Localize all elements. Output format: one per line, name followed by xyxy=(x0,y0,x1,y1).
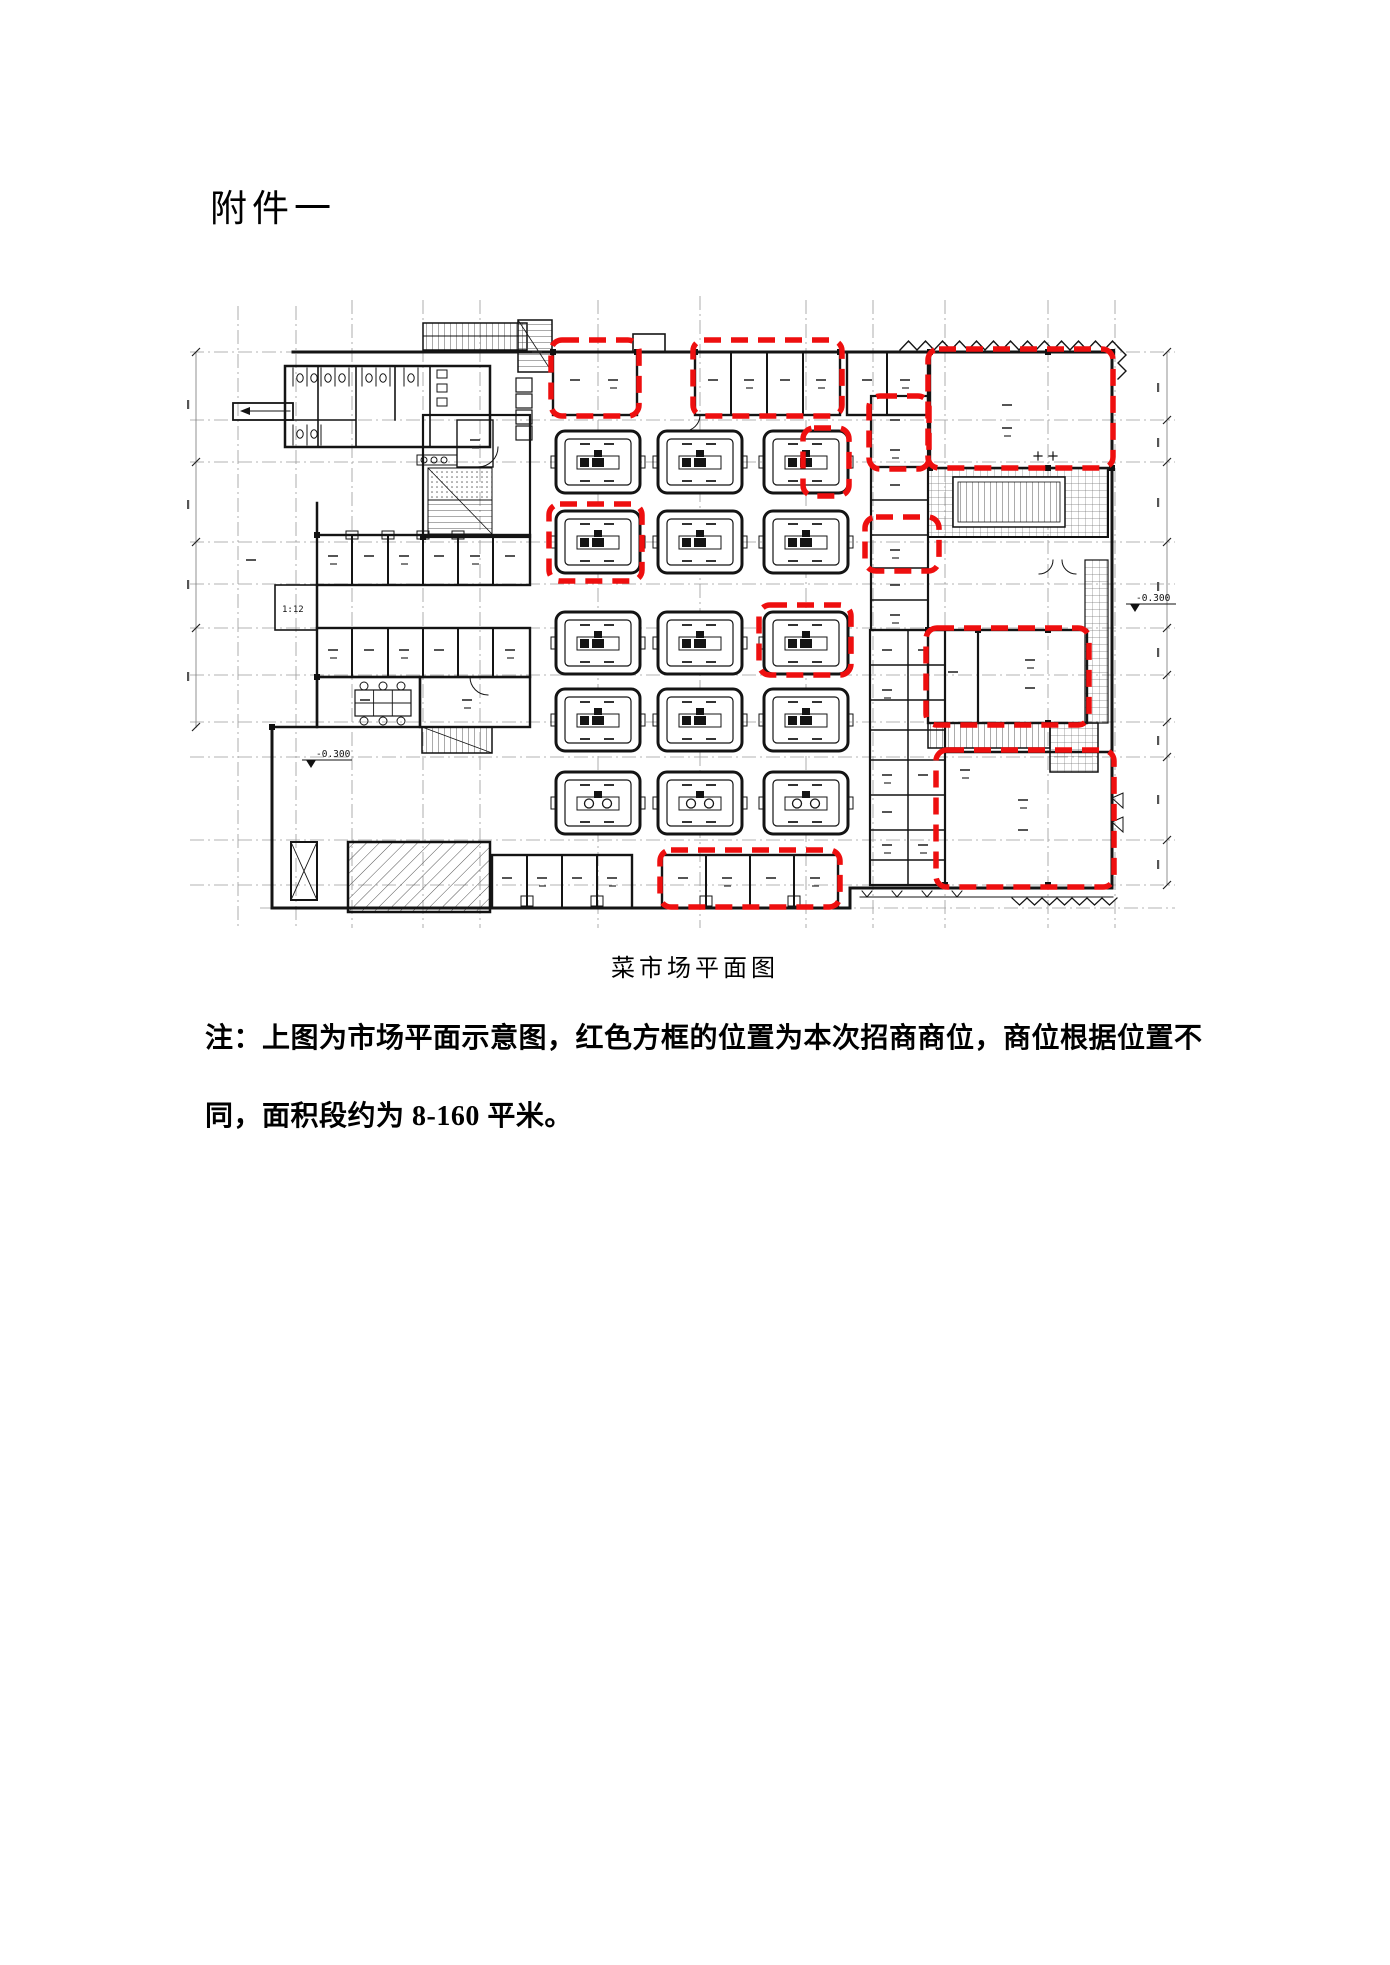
attachment-title: 附件一 xyxy=(210,178,336,232)
document-page: 附件一 xyxy=(0,0,1390,1965)
elevation-marker-left: -0.300 xyxy=(316,749,351,760)
figure-caption: 菜市场平面图 xyxy=(160,948,1230,983)
floor-plan-figure: 1:12 -0.300 -0.300 xyxy=(160,240,1230,940)
elevation-marker-right: -0.300 xyxy=(1136,593,1171,604)
note-text-line1: 注：上图为市场平面示意图，红色方框的位置为本次招商商位，商位根据位置不 xyxy=(205,1016,1203,1056)
note-text-line2: 同，面积段约为 8-160 平米。 xyxy=(205,1094,573,1134)
ramp-slope-label: 1:12 xyxy=(282,605,304,615)
market-floor-plan-drawing: 1:12 -0.300 -0.300 xyxy=(160,240,1230,940)
